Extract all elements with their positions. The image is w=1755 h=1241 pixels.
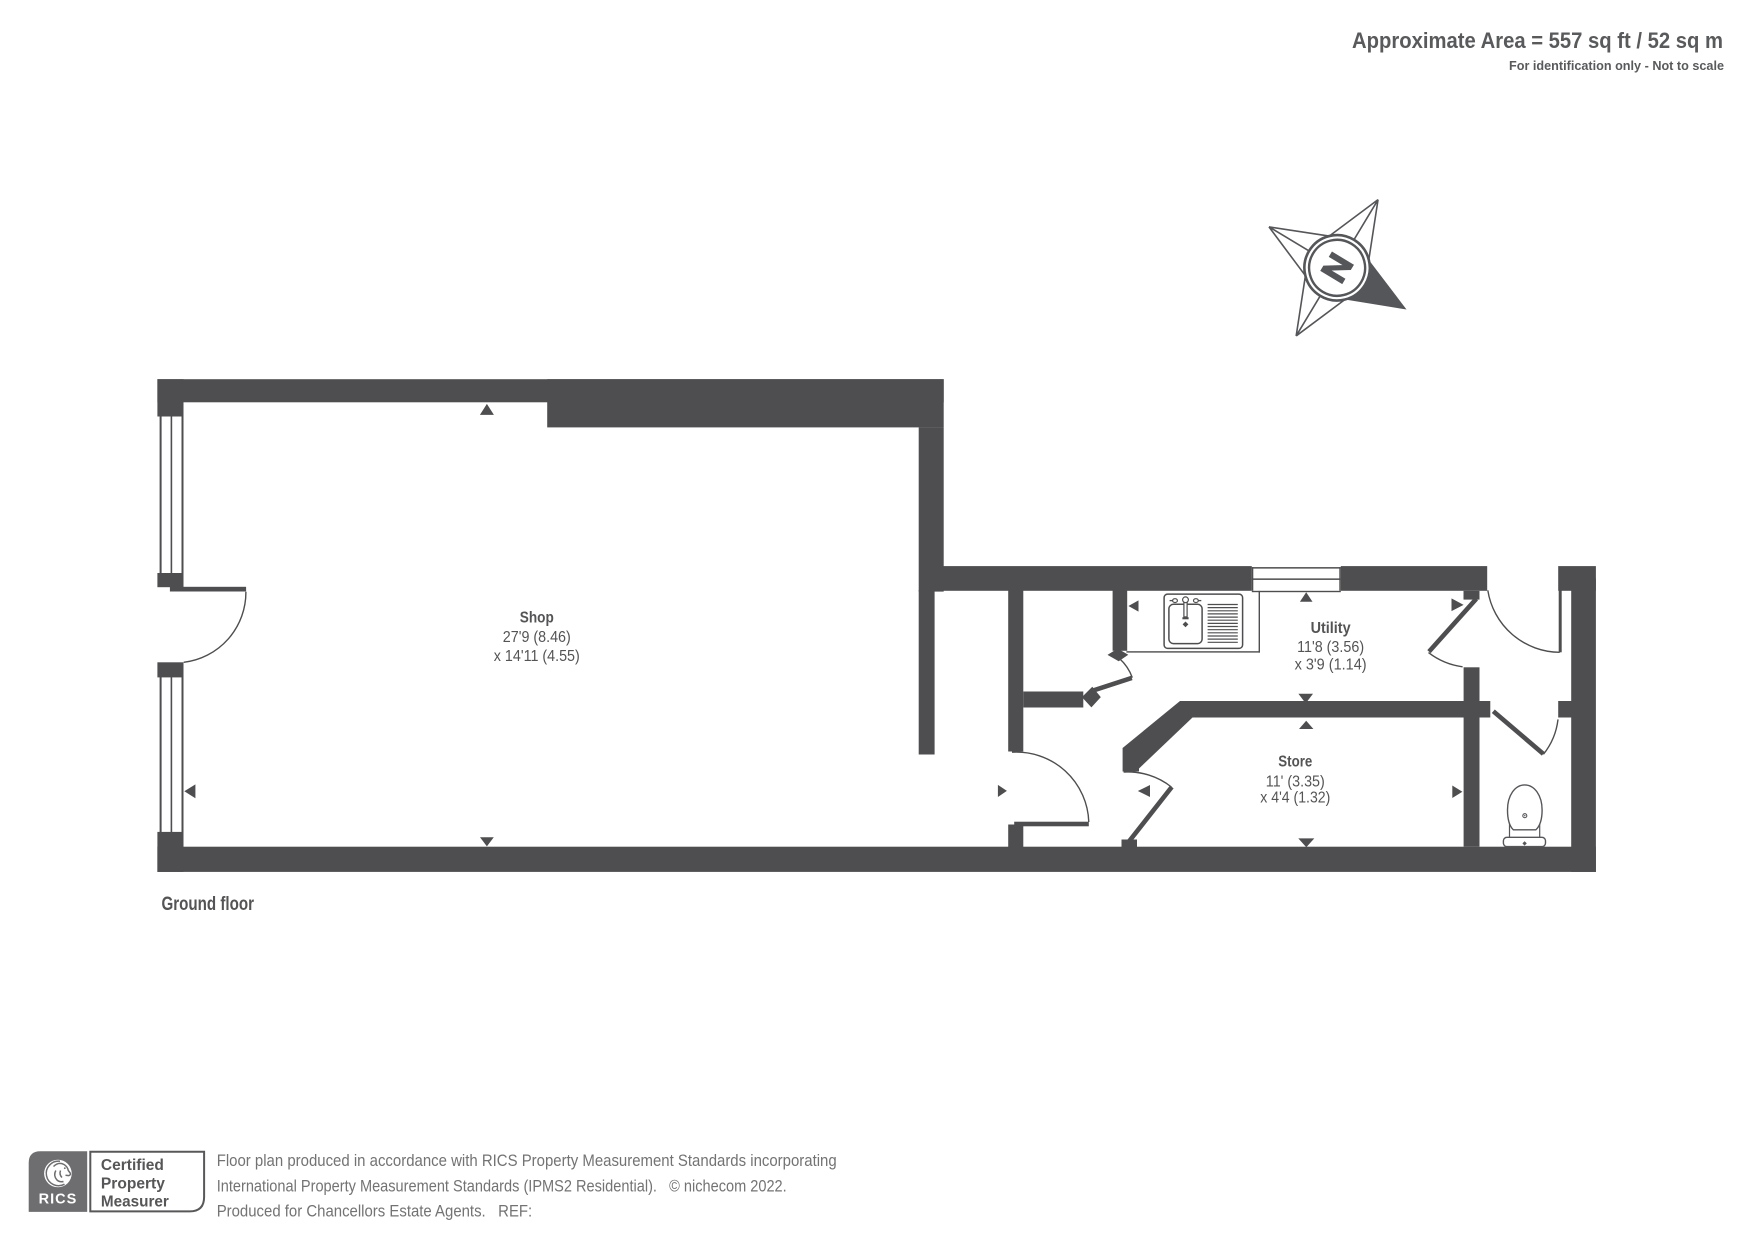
svg-text:Certified: Certified: [101, 1157, 164, 1174]
svg-text:Utility: Utility: [1311, 620, 1351, 637]
svg-text:International Property Measure: International Property Measurement Stand…: [217, 1176, 787, 1195]
svg-text:Store: Store: [1278, 753, 1312, 770]
svg-text:Floor plan produced in accorda: Floor plan produced in accordance with R…: [217, 1151, 837, 1170]
svg-text:x 4'4 (1.32): x 4'4 (1.32): [1260, 789, 1330, 806]
svg-text:Approximate Area = 557 sq ft /: Approximate Area = 557 sq ft / 52 sq m: [1352, 28, 1723, 53]
svg-text:Produced for Chancellors Estat: Produced for Chancellors Estate Agents. …: [217, 1202, 533, 1221]
svg-text:11' (3.35): 11' (3.35): [1266, 773, 1325, 790]
svg-text:Shop: Shop: [520, 610, 554, 627]
svg-text:Property: Property: [101, 1175, 165, 1192]
svg-text:Ground floor: Ground floor: [162, 894, 255, 915]
svg-text:RICS: RICS: [39, 1192, 78, 1208]
svg-text:x 3'9 (1.14): x 3'9 (1.14): [1295, 656, 1367, 673]
svg-text:Measurer: Measurer: [101, 1194, 169, 1211]
svg-text:27'9 (8.46): 27'9 (8.46): [503, 629, 571, 646]
svg-text:11'8 (3.56): 11'8 (3.56): [1297, 639, 1364, 656]
svg-text:x 14'11 (4.55): x 14'11 (4.55): [494, 648, 580, 665]
svg-text:For identification only - Not: For identification only - Not to scale: [1509, 58, 1724, 73]
